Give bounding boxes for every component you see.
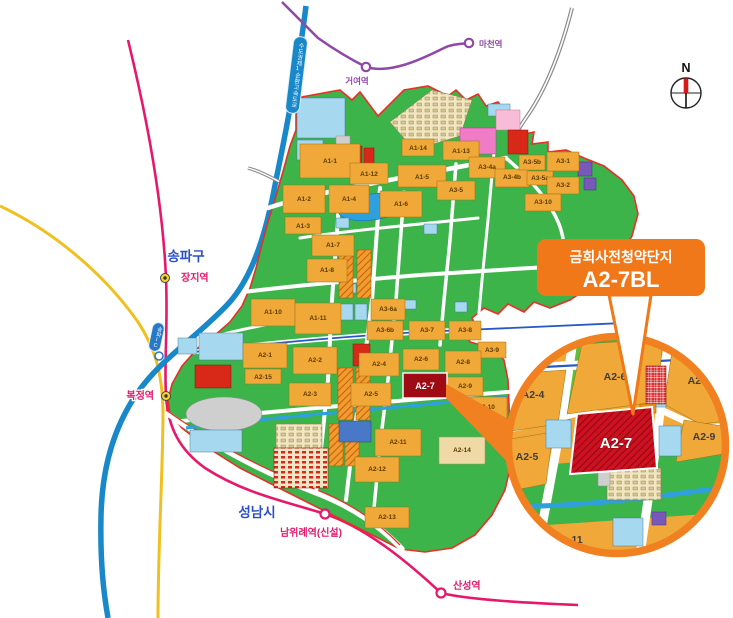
geoyeo-station-marker [362, 63, 370, 71]
highlight-label-a2-7: A2-7 [415, 381, 435, 391]
parcel-label-a1-12: A1-12 [360, 171, 378, 178]
parcel-label-a1-5: A1-5 [415, 174, 429, 181]
parcel-label-a2-11: A2-11 [389, 439, 407, 446]
parcel-label-a2-12: A2-12 [368, 466, 386, 473]
parcel-label-a1-10: A1-10 [264, 309, 282, 316]
parcel-label-a2-6: A2-6 [414, 356, 428, 363]
highlight-parcel-a2-7: A2-7 [403, 373, 447, 398]
parcel-label-a1-4: A1-4 [342, 196, 356, 203]
macheon-station-label: 마천역 [479, 39, 502, 49]
parcel-label-a2-9: A2-9 [458, 383, 472, 390]
parcel-label-a1-8: A1-8 [320, 267, 334, 274]
geoyeo-station-label: 거여역 [345, 76, 368, 86]
parcel-label-a2-13: A2-13 [378, 514, 396, 521]
songpa-ic-label: 송파IC [151, 325, 161, 349]
parcel-label-a3-10: A3-10 [534, 199, 552, 206]
parcel-label-a2-3: A2-3 [303, 391, 317, 398]
parcel-label-a1-6: A1-6 [394, 201, 408, 208]
parcel-label-a2-4: A2-4 [372, 361, 386, 368]
inset-label-a2-6: A2-6 [604, 371, 627, 383]
region-label-seongnam: 성남시 [238, 504, 275, 520]
parcel-label-a1-14: A1-14 [409, 145, 427, 152]
jangji-station-label: 장지역 [181, 271, 209, 284]
land-use-map: A1-1 A1-2 A1-3 A1-4 A1-12 A1-5 A1-6 A1-1… [0, 0, 733, 618]
parcel-label-a3-5b: A3-5b [523, 159, 541, 166]
parcel-label-a1-3: A1-3 [296, 223, 310, 230]
callout-title: 금회사전청약단지 [569, 249, 672, 265]
parcel-label-a3-4a: A3-4a [478, 164, 496, 171]
parcel-label-a3-8: A3-8 [458, 327, 472, 334]
namwirye-station-marker [321, 510, 330, 519]
parcel-label-a3-6a: A3-6a [379, 306, 397, 313]
parcel-label-a3-5a: A3-5a [531, 175, 549, 182]
parcel-label-a2-5: A2-5 [364, 391, 378, 398]
parcel-label-a2-15: A2-15 [254, 374, 272, 381]
subway-line-5 [282, 2, 469, 69]
compass-needle-north [684, 79, 689, 94]
parcel-label-a2-14: A2-14 [453, 447, 471, 454]
callout-block-label: A2-7BL [582, 267, 659, 292]
compass-needle-south [685, 93, 687, 108]
callout-box: 금회사전청약단지 A2-7BL [537, 239, 705, 296]
parcel-label-a2-8: A2-8 [456, 359, 470, 366]
region-label-songpa: 송파구 [167, 249, 204, 264]
inset-label-a2-5: A2-5 [516, 451, 539, 463]
parcel-label-a1-2: A1-2 [297, 196, 311, 203]
inset-label-a2-7: A2-7 [600, 435, 633, 452]
songpa-ic-marker [155, 352, 163, 360]
parcel-label-a3-4b: A3-4b [503, 174, 521, 181]
inset-label-a2-9: A2-9 [693, 431, 716, 443]
parcel-label-a1-13: A1-13 [452, 148, 470, 155]
sanseong-station-label: 산성역 [453, 579, 481, 592]
namwirye-station-label: 남위례역(신설) [280, 526, 342, 539]
north-compass: N [671, 61, 701, 108]
sanseong-station-marker [437, 589, 446, 598]
parcel-label-a3-7: A3-7 [420, 327, 434, 334]
compass-north-label: N [681, 61, 690, 75]
parcel-label-a3-2: A3-2 [556, 182, 570, 189]
bokjeong-station-label: 복정역 [126, 389, 154, 402]
parcel-label-a3-9: A3-9 [485, 347, 499, 354]
parcel-label-a2-1: A2-1 [258, 352, 272, 359]
parcel-label-a2-2: A2-2 [308, 357, 322, 364]
parcel-label-a1-11: A1-11 [309, 315, 327, 322]
road-yellow-line [0, 206, 163, 618]
parcel-label-a3-6b: A3-6b [376, 327, 394, 334]
magnifier-inset: A2-4 A2-6 A2-8 A2-5 A2-9 A3-7 11 A2-7 [505, 332, 733, 563]
parcel-label-a3-5: A3-5 [449, 187, 463, 194]
parcel-label-a3-1: A3-1 [556, 158, 570, 165]
macheon-station-marker [465, 39, 473, 47]
parcel-label-a1-7: A1-7 [326, 242, 340, 249]
parcel-label-a1-1: A1-1 [323, 158, 337, 165]
